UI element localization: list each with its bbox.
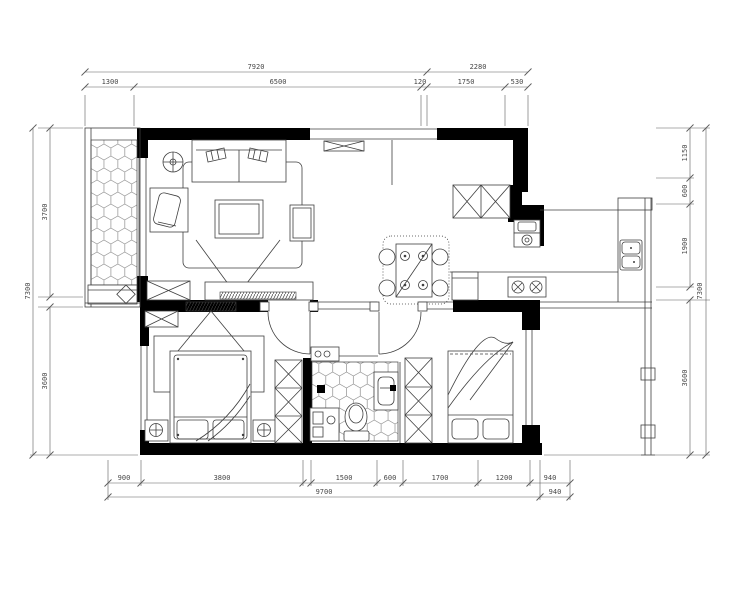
dim-right-seg0: 1150 [681,145,689,162]
laundry-cabinet [310,408,339,441]
door-bedroom-1 [260,302,318,354]
bedroom1-cabinet [145,311,178,327]
balcony-shelf [88,285,137,304]
dining-area [379,236,449,304]
bathroom-shelf [311,347,339,361]
floor-lamp [163,152,183,172]
dining-table [396,244,432,297]
nightstand-right [253,420,276,441]
dim-top-seg0: 1300 [102,78,119,86]
dim-left-seg0: 3700 [41,204,49,221]
sofa [192,140,286,182]
side-table [290,205,314,241]
balcony [85,128,140,307]
armchair [150,188,188,232]
dim-top-seg4: 530 [511,78,524,86]
dim-right-seg3: 3600 [681,370,689,387]
dim-top-seg3: 1750 [458,78,475,86]
door-bathroom-hall [370,302,427,354]
bedroom-2 [448,337,513,443]
bedroom-1 [145,302,302,443]
dim-bottom-seg4: 1700 [432,474,449,482]
water-heater [514,220,540,247]
dim-bottom-overall: 9700 [316,488,333,496]
toilet [344,403,369,441]
wardrobe-1 [275,360,302,443]
bed-2 [448,337,513,443]
bed-1 [170,351,251,443]
dim-bottom-seg6: 940 [544,474,557,482]
kitchen [450,210,642,302]
nightstand-left [145,420,168,441]
top-wall-window [324,141,364,151]
dim-top-overall-right: 2280 [470,63,487,71]
dim-bottom-side: 940 [549,488,562,496]
storage-cabinet [453,185,510,218]
dim-top-seg1: 6500 [270,78,287,86]
dim-right-overall: 7300 [696,283,704,300]
dim-top-seg2: 120 [414,78,427,86]
stove [508,277,546,297]
tv-cabinet [205,282,313,300]
wardrobe-2 [405,358,432,443]
dim-bottom-seg1: 3800 [214,474,231,482]
dimension-right: 1150 600 1900 3600 7300 [544,125,710,459]
living-room [147,140,314,300]
balcony-tile-floor [91,140,137,285]
floor-plan-svg: 7920 2280 1300 6500 120 1750 530 900 380… [0,0,740,600]
dim-left-seg1: 3600 [41,373,49,390]
bathroom [310,347,400,443]
dim-bottom-seg0: 900 [118,474,131,482]
dim-bottom-seg2: 1500 [336,474,353,482]
dim-bottom-seg5: 1200 [496,474,513,482]
dimension-bottom: 900 3800 1500 600 1700 1200 940 9700 940 [105,460,574,501]
floor-drain [317,385,325,393]
shoe-cabinet [147,281,190,300]
kitchen-cabinet [452,272,478,300]
dim-right-seg2: 1900 [681,238,689,255]
dim-top-overall-left: 7920 [248,63,265,71]
tv-screen [220,292,296,299]
exterior-ledge [641,310,655,455]
coffee-table [215,200,263,238]
vanity-sink [374,372,398,410]
dim-right-seg1: 600 [681,185,689,198]
dim-bottom-seg3: 600 [384,474,397,482]
dimension-top: 7920 2280 1300 6500 120 1750 530 [82,63,532,126]
dim-left-overall: 7300 [24,283,32,300]
kitchen-sink [620,240,642,270]
floor-plan-canvas: 7920 2280 1300 6500 120 1750 530 900 380… [0,0,740,600]
